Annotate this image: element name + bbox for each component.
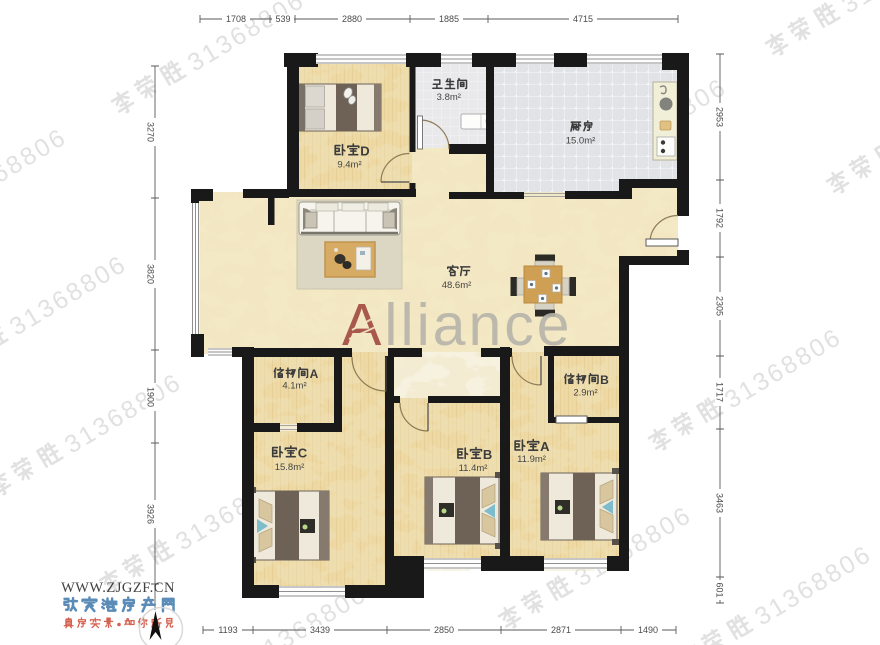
svg-text:539: 539: [275, 14, 290, 24]
svg-text:B: B: [483, 447, 492, 462]
svg-text:1792: 1792: [715, 208, 725, 228]
svg-text:48.6m²: 48.6m²: [442, 280, 472, 291]
svg-text:4.1m²: 4.1m²: [282, 381, 306, 392]
svg-text:2.9m²: 2.9m²: [573, 388, 597, 399]
svg-text:2305: 2305: [715, 296, 725, 316]
svg-text:1708: 1708: [226, 14, 246, 24]
svg-text:9.4m²: 9.4m²: [337, 160, 361, 171]
svg-text:A: A: [540, 439, 550, 454]
svg-text:1193: 1193: [218, 625, 237, 635]
svg-text:11.9m²: 11.9m²: [517, 454, 546, 465]
svg-text:WWW.ZJGZF.CN: WWW.ZJGZF.CN: [61, 580, 175, 596]
svg-text:B: B: [600, 373, 609, 387]
svg-text:2880: 2880: [342, 14, 362, 24]
svg-text:2871: 2871: [551, 625, 571, 635]
svg-text:1885: 1885: [439, 14, 459, 24]
svg-text:1490: 1490: [638, 625, 658, 635]
svg-text:3926: 3926: [146, 504, 156, 524]
svg-text:1717: 1717: [715, 382, 725, 402]
svg-text:4715: 4715: [573, 14, 593, 24]
svg-text:D: D: [360, 144, 369, 159]
svg-text:2953: 2953: [715, 107, 725, 127]
svg-text:3270: 3270: [146, 122, 156, 142]
svg-text:15.8m²: 15.8m²: [275, 462, 305, 473]
svg-text:11.4m²: 11.4m²: [459, 463, 488, 474]
svg-text:3463: 3463: [715, 493, 725, 513]
svg-text:15.0m²: 15.0m²: [566, 136, 596, 147]
svg-text:1900: 1900: [146, 387, 156, 407]
svg-text:C: C: [298, 446, 308, 461]
svg-text:2850: 2850: [434, 625, 454, 635]
svg-text:601: 601: [715, 582, 725, 597]
svg-text:3820: 3820: [146, 264, 156, 284]
svg-text:3.8m²: 3.8m²: [437, 92, 461, 103]
svg-text:A: A: [310, 367, 319, 381]
svg-text:Alliance: Alliance: [342, 292, 573, 358]
svg-text:3439: 3439: [310, 625, 330, 635]
